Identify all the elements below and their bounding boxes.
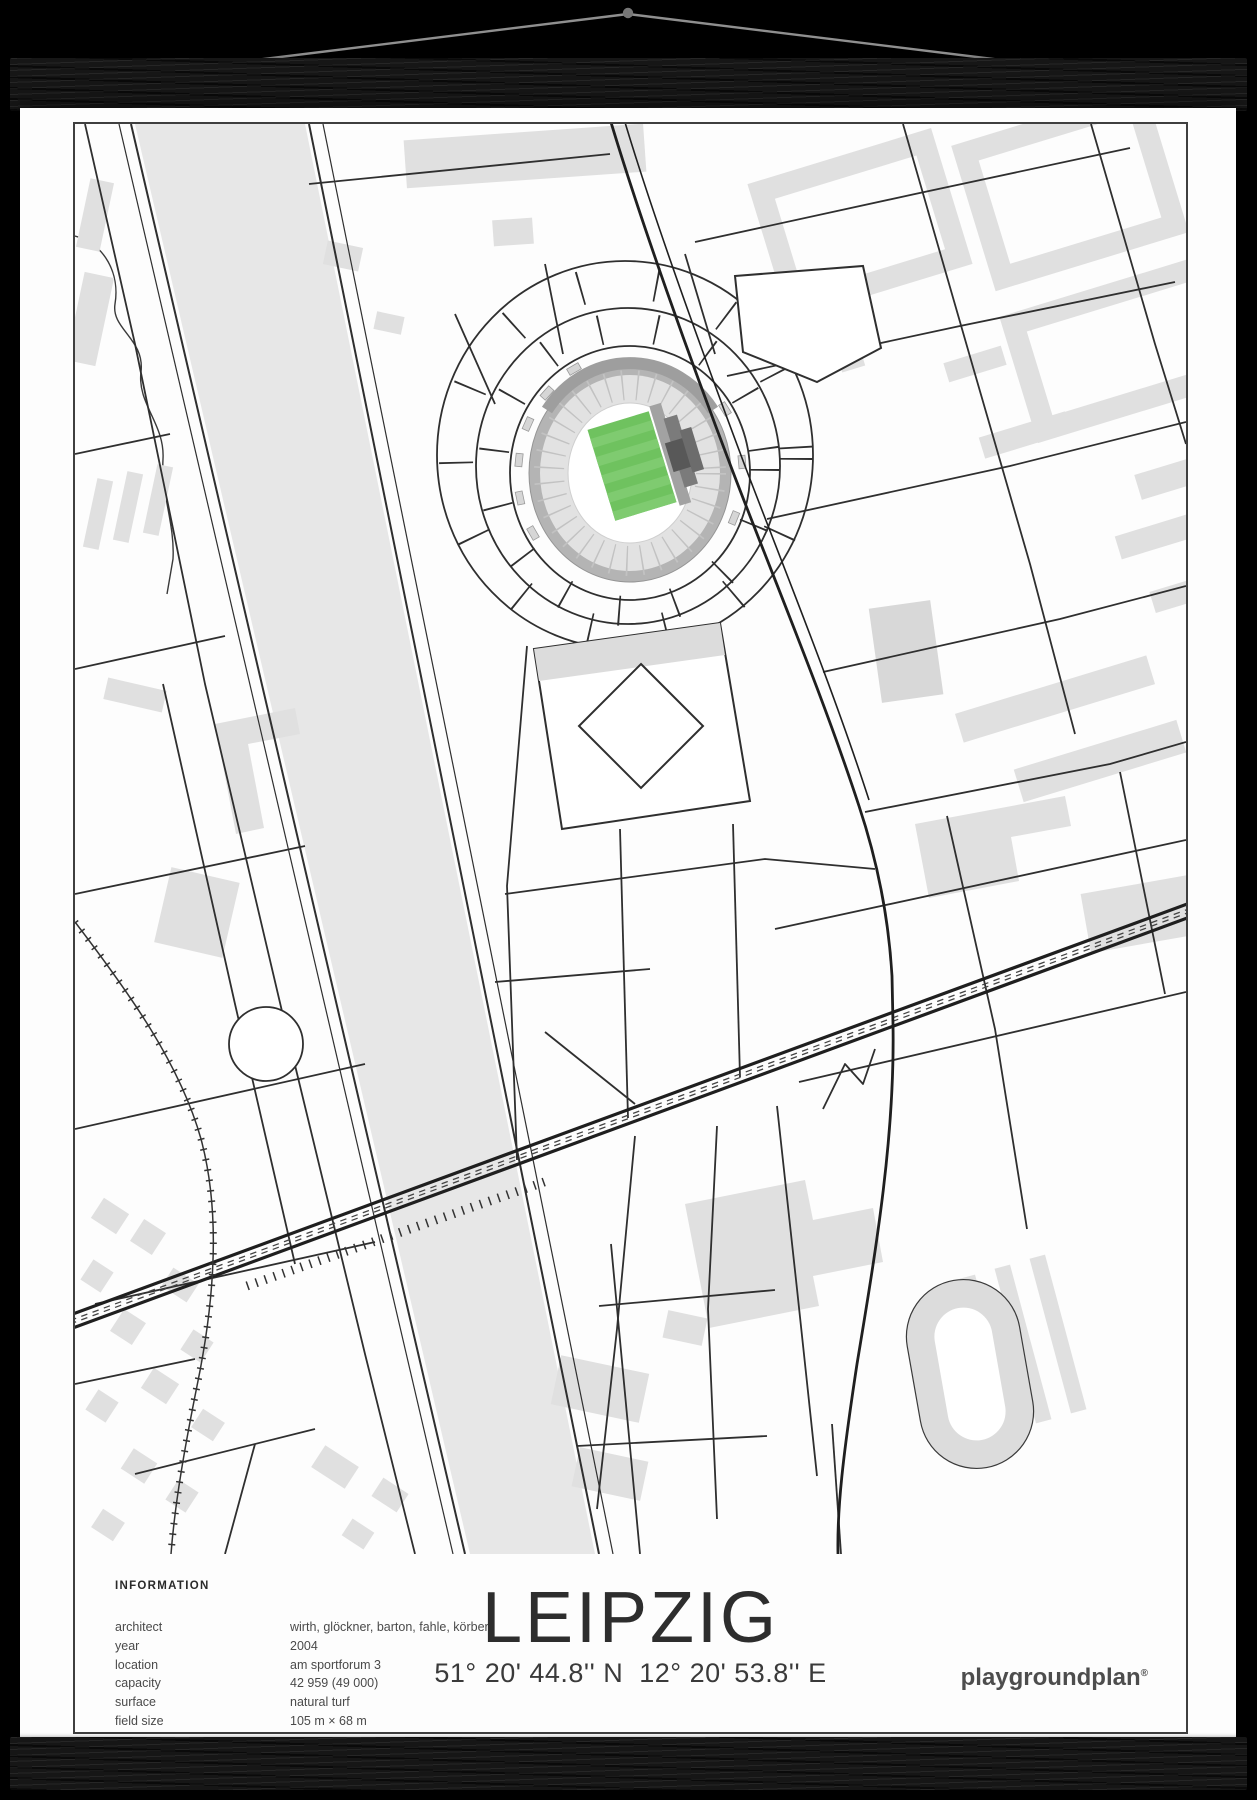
brand-name: playgroundplan	[961, 1664, 1141, 1691]
poster-title: LEIPZIG	[75, 1582, 1186, 1654]
info-row: field size 105 m × 68 m	[115, 1712, 489, 1731]
string-knot	[623, 8, 633, 18]
poster: INFORMATION architect wirth, glöckner, b…	[20, 108, 1236, 1746]
info-row: surface natural turf	[115, 1693, 489, 1712]
stadium-map	[75, 124, 1186, 1554]
info-value: natural turf	[290, 1693, 350, 1712]
top-hanger-bar	[10, 58, 1247, 111]
registered-mark: ®	[1141, 1668, 1148, 1679]
athletics-track	[897, 1271, 1042, 1478]
info-label: field size	[115, 1712, 290, 1731]
bottom-hanger-bar	[10, 1737, 1247, 1790]
river	[75, 124, 595, 1554]
product-photo: { "poster": { "title": "LEIPZIG", "coord…	[0, 0, 1257, 1800]
arena-hall	[534, 623, 750, 829]
map-frame: INFORMATION architect wirth, glöckner, b…	[73, 122, 1188, 1734]
pond	[229, 1007, 303, 1081]
brand-logo: playgroundplan®	[961, 1664, 1148, 1692]
stadium-bowl	[515, 363, 746, 582]
info-label: surface	[115, 1693, 290, 1712]
info-value: 105 m × 68 m	[290, 1712, 367, 1731]
